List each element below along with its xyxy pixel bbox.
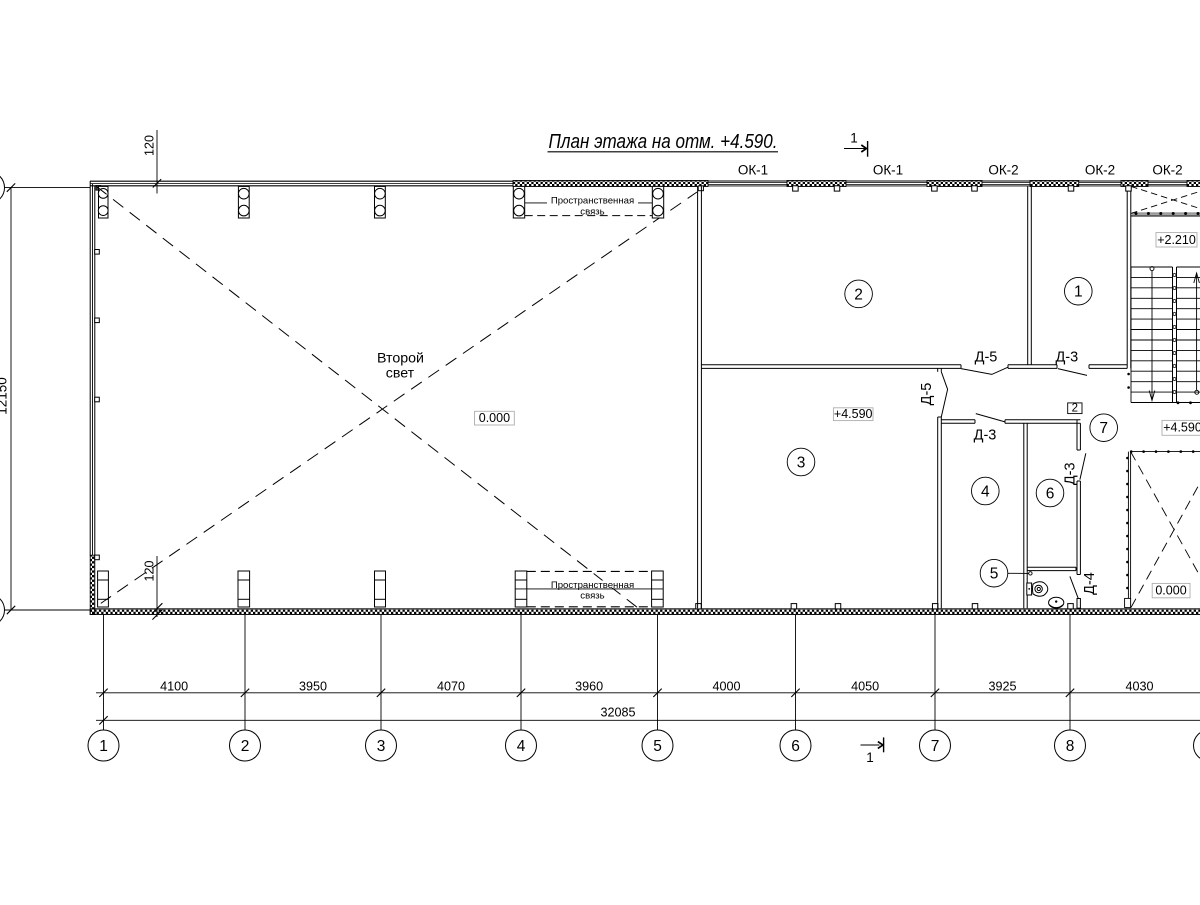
svg-text:4000: 4000 [712, 679, 740, 693]
svg-text:+4.590: +4.590 [1163, 421, 1200, 435]
svg-text:1: 1 [1074, 284, 1083, 301]
svg-text:связь: связь [580, 591, 604, 602]
svg-text:120: 120 [143, 135, 157, 156]
svg-text:ОК-1: ОК-1 [738, 163, 768, 178]
svg-text:0.000: 0.000 [1155, 583, 1186, 597]
svg-text:5: 5 [653, 738, 662, 755]
svg-text:4070: 4070 [437, 679, 465, 693]
svg-text:4: 4 [517, 738, 526, 755]
svg-text:1: 1 [99, 738, 108, 755]
svg-text:Д-4: Д-4 [1082, 572, 1098, 595]
svg-text:0.000: 0.000 [479, 411, 510, 425]
svg-text:2: 2 [1072, 403, 1078, 415]
svg-text:Д-3: Д-3 [1063, 462, 1079, 485]
svg-text:Пространственная: Пространственная [551, 580, 634, 591]
svg-text:2: 2 [241, 738, 250, 755]
svg-text:свет: свет [386, 366, 415, 382]
svg-text:ОК-2: ОК-2 [1085, 163, 1115, 178]
svg-text:12150: 12150 [0, 377, 10, 415]
svg-text:1: 1 [866, 750, 874, 765]
svg-text:3960: 3960 [575, 679, 603, 693]
svg-text:Пространственная: Пространственная [551, 196, 634, 207]
svg-text:3: 3 [797, 454, 806, 471]
svg-text:4030: 4030 [1125, 679, 1153, 693]
svg-text:4050: 4050 [851, 679, 879, 693]
svg-text:Д-5: Д-5 [919, 383, 935, 406]
svg-text:5: 5 [990, 566, 999, 583]
svg-text:ОК-2: ОК-2 [1152, 163, 1182, 178]
svg-text:8: 8 [1066, 738, 1075, 755]
svg-text:План этажа на отм. +4.590.: План этажа на отм. +4.590. [549, 130, 778, 153]
svg-text:3950: 3950 [299, 679, 327, 693]
svg-text:2: 2 [854, 286, 863, 303]
svg-text:4100: 4100 [160, 679, 188, 693]
svg-text:+2.210: +2.210 [1157, 233, 1196, 247]
svg-text:ОК-2: ОК-2 [988, 163, 1018, 178]
svg-text:+4.590: +4.590 [834, 407, 873, 421]
svg-text:4: 4 [981, 483, 990, 500]
svg-text:6: 6 [1046, 485, 1055, 502]
svg-text:Д-3: Д-3 [1055, 350, 1078, 366]
svg-text:7: 7 [1099, 420, 1108, 437]
svg-text:6: 6 [791, 738, 800, 755]
svg-text:3925: 3925 [988, 679, 1016, 693]
svg-text:120: 120 [143, 560, 157, 581]
svg-text:Д-5: Д-5 [975, 350, 998, 366]
svg-text:7: 7 [931, 738, 940, 755]
svg-text:Второй: Второй [377, 351, 424, 367]
svg-text:3: 3 [377, 738, 386, 755]
svg-text:Д-3: Д-3 [974, 428, 997, 444]
svg-text:связь: связь [580, 207, 604, 218]
svg-text:1: 1 [850, 131, 858, 146]
svg-text:32085: 32085 [600, 706, 635, 720]
svg-text:ОК-1: ОК-1 [873, 163, 903, 178]
